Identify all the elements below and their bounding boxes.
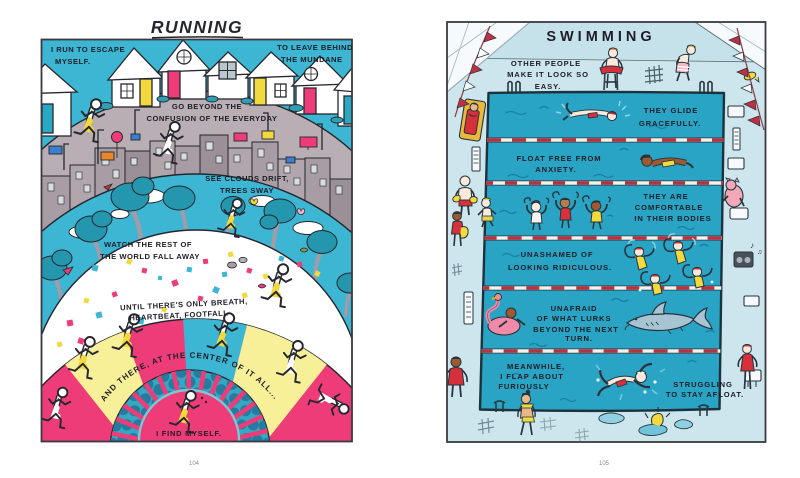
svg-text:I FIND MYSELF.: I FIND MYSELF.: [156, 429, 222, 438]
svg-text:MAKE IT LOOK SO: MAKE IT LOOK SO: [507, 70, 589, 79]
svg-text:TO STAY AFLOAT.: TO STAY AFLOAT.: [666, 390, 744, 399]
svg-text:UNAFRAID: UNAFRAID: [551, 304, 598, 313]
svg-text:UNASHAMED OF: UNASHAMED OF: [521, 250, 594, 259]
svg-text:TURN.: TURN.: [565, 334, 593, 343]
svg-text:105: 105: [599, 461, 610, 467]
svg-text:TO LEAVE BEHIND: TO LEAVE BEHIND: [277, 43, 353, 52]
svg-text:104: 104: [189, 461, 200, 467]
svg-text:RUNNING: RUNNING: [151, 17, 243, 37]
svg-text:OTHER PEOPLE: OTHER PEOPLE: [511, 59, 581, 68]
svg-text:EASY.: EASY.: [535, 82, 561, 91]
svg-text:FURIOUSLY: FURIOUSLY: [498, 382, 549, 391]
svg-text:BEYOND THE NEXT: BEYOND THE NEXT: [533, 325, 619, 334]
svg-text:COMFORTABLE: COMFORTABLE: [635, 203, 703, 212]
svg-text:♪: ♪: [750, 241, 754, 250]
svg-text:ANXIETY.: ANXIETY.: [535, 165, 576, 174]
svg-text:♫: ♫: [757, 249, 762, 256]
svg-text:MYSELF.: MYSELF.: [55, 57, 91, 66]
svg-text:SEE CLOUDS DRIFT,: SEE CLOUDS DRIFT,: [205, 174, 289, 183]
svg-text:OF WHAT LURKS: OF WHAT LURKS: [537, 314, 612, 323]
svg-text:WATCH THE REST OF: WATCH THE REST OF: [104, 240, 192, 249]
svg-text:THE MUNDANE: THE MUNDANE: [281, 55, 343, 64]
svg-text:STRUGGLING: STRUGGLING: [673, 380, 733, 389]
svg-text:THEY ARE: THEY ARE: [643, 192, 688, 201]
svg-text:CONFUSION OF THE EVERYDAY: CONFUSION OF THE EVERYDAY: [147, 114, 278, 123]
svg-text:SWIMMING: SWIMMING: [546, 29, 655, 45]
svg-text:I RUN TO ESCAPE: I RUN TO ESCAPE: [51, 45, 125, 54]
svg-text:GO BEYOND THE: GO BEYOND THE: [172, 102, 242, 111]
svg-text:IN THEIR BODIES: IN THEIR BODIES: [634, 214, 711, 223]
svg-text:MEANWHILE,: MEANWHILE,: [507, 362, 565, 371]
svg-text:TREES SWAY: TREES SWAY: [220, 186, 274, 195]
svg-text:THEY GLIDE: THEY GLIDE: [644, 106, 698, 115]
svg-text:GRACEFULLY.: GRACEFULLY.: [639, 119, 701, 128]
svg-text:LOOKING RIDICULOUS.: LOOKING RIDICULOUS.: [508, 263, 612, 272]
svg-text:FLOAT FREE FROM: FLOAT FREE FROM: [516, 154, 601, 163]
svg-text:I FLAP ABOUT: I FLAP ABOUT: [500, 372, 564, 381]
svg-text:THE WORLD FALL AWAY: THE WORLD FALL AWAY: [100, 252, 200, 261]
